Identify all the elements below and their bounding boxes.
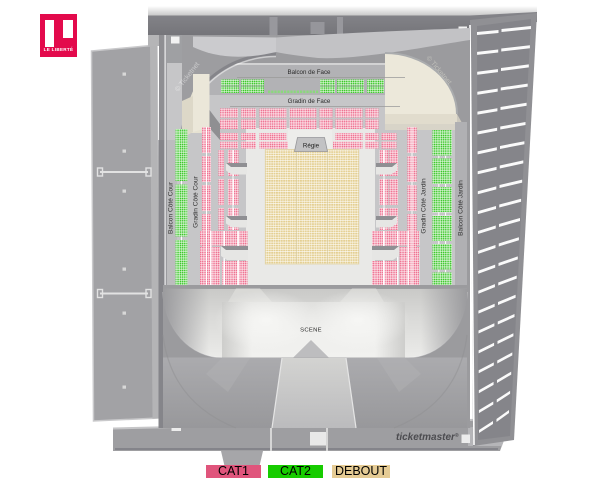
svg-text:Balcon de Face: Balcon de Face bbox=[288, 69, 332, 76]
svg-text:Gradin Côté Cour: Gradin Côté Cour bbox=[193, 175, 200, 227]
svg-text:SCENE: SCENE bbox=[300, 328, 322, 334]
svg-text:Balcon Côté Cour: Balcon Côté Cour bbox=[168, 181, 175, 234]
svg-text:Balcon Côté Jardin: Balcon Côté Jardin bbox=[458, 180, 465, 236]
svg-text:Gradin Côté Jardin: Gradin Côté Jardin bbox=[421, 178, 428, 234]
svg-text:Régie: Régie bbox=[303, 143, 320, 150]
svg-text:ticketmaster®: ticketmaster® bbox=[396, 432, 459, 443]
svg-text:Gradin de Face: Gradin de Face bbox=[288, 98, 331, 105]
